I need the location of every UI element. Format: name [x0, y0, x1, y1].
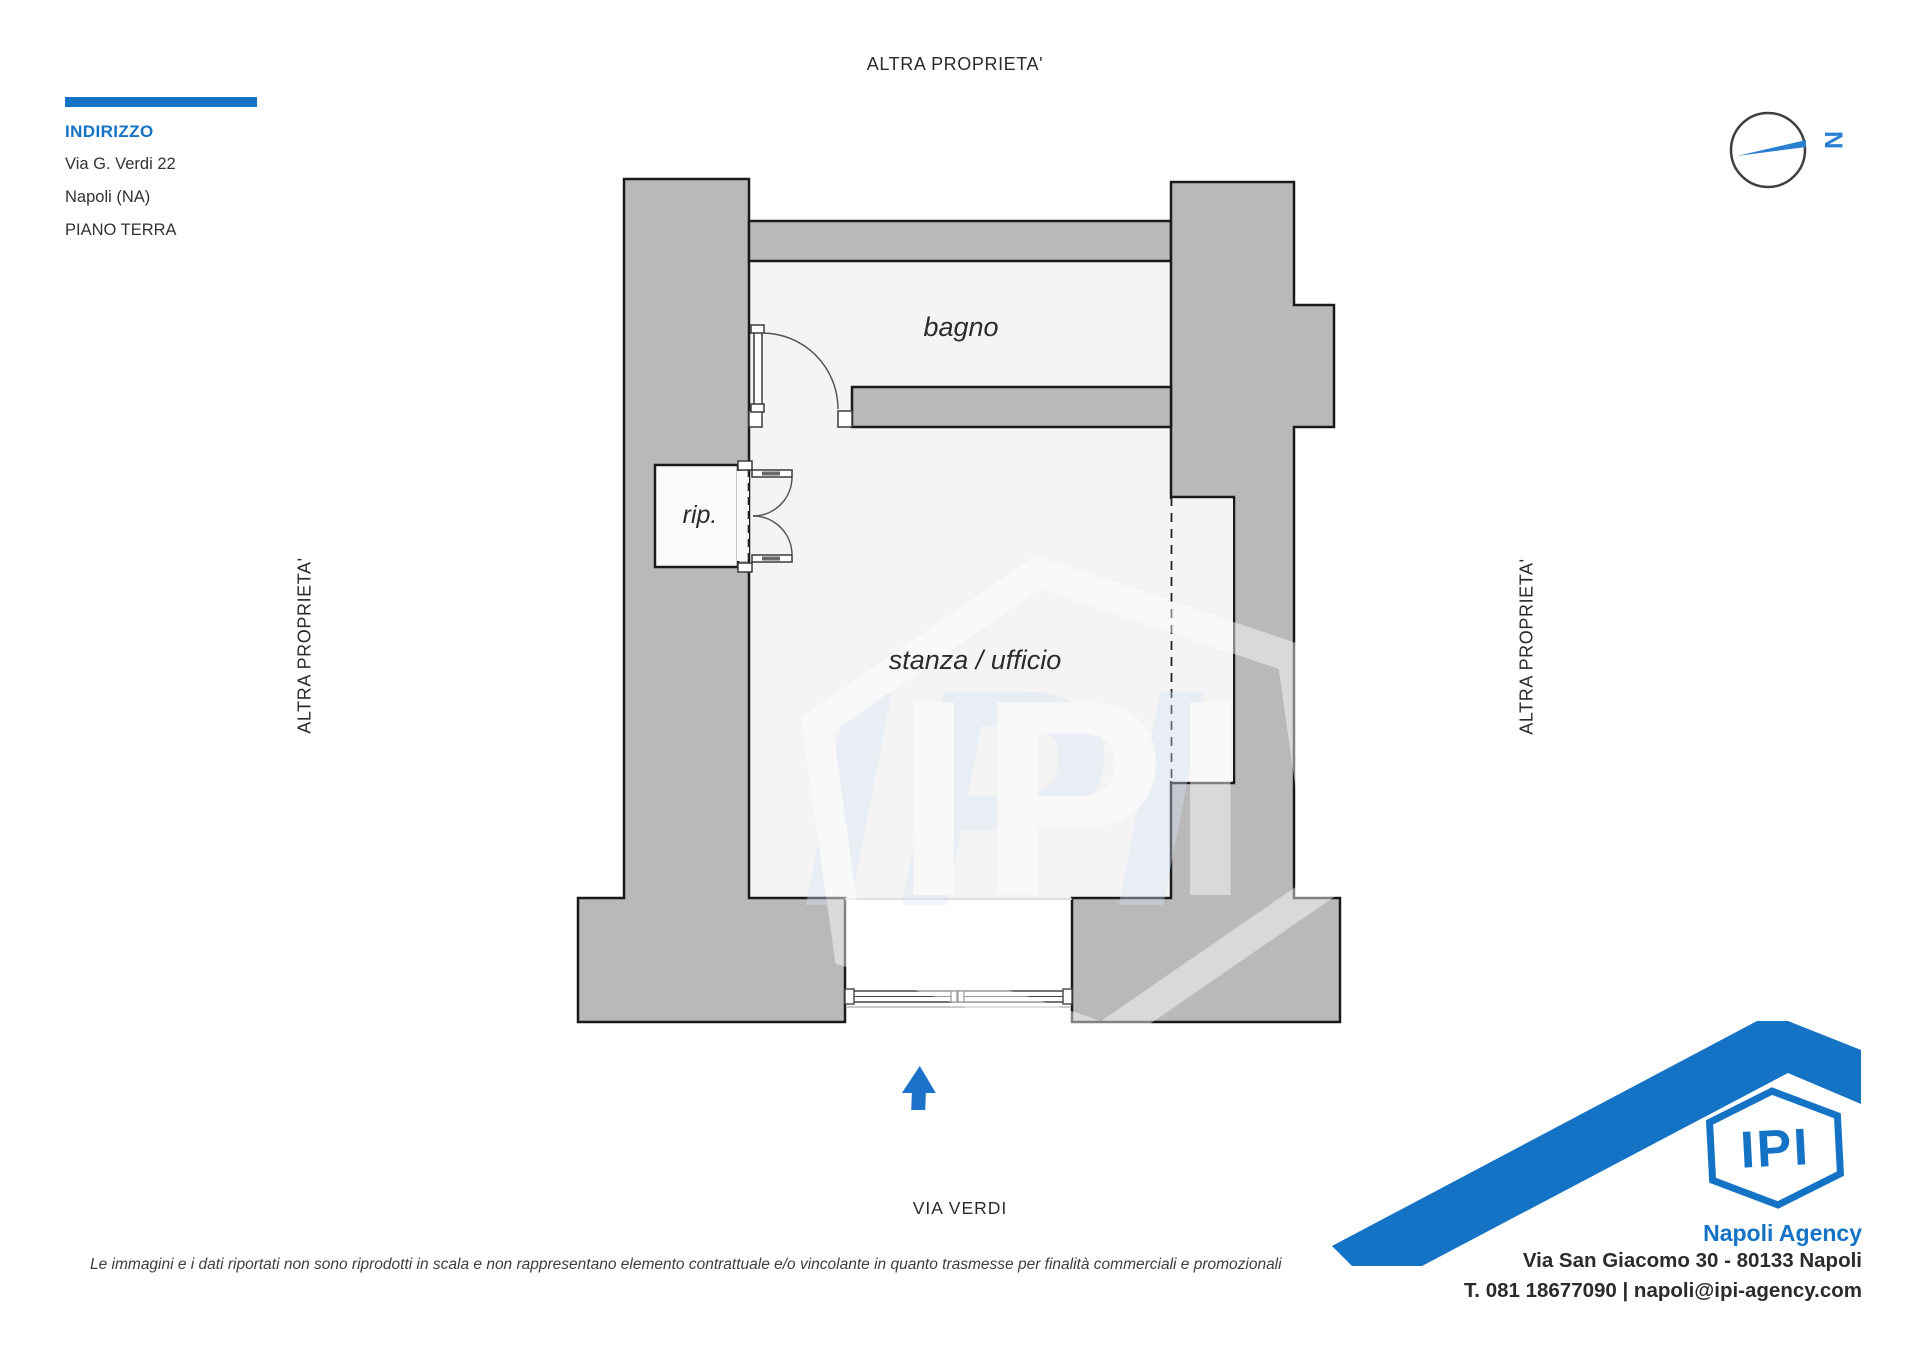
window-cap-left	[845, 989, 854, 1004]
room-label-stanza: stanza / ufficio	[825, 645, 1125, 676]
agency-contacts: T. 081 18677090 | napoli@ipi-agency.com	[1464, 1279, 1862, 1303]
header-accent-bar	[65, 97, 257, 107]
agency-address: Via San Giacomo 30 - 80133 Napoli	[1523, 1249, 1862, 1273]
floorplan-canvas: IPI IPI N IPI	[0, 0, 1920, 1358]
room-label-bagno: bagno	[861, 312, 1061, 343]
floorplan-page: IPI IPI N IPI INDIRIZZO Via G. Verdi 22 …	[0, 0, 1920, 1358]
compass: N	[1731, 113, 1847, 187]
address-floor: PIANO TERRA	[65, 221, 177, 240]
agency-name: Napoli Agency	[1703, 1220, 1862, 1247]
bagno-door-leaf	[754, 331, 762, 409]
rip-door-jamb-bottom	[738, 563, 752, 572]
compass-north-label: N	[1819, 131, 1847, 149]
rip-door-jamb-top	[738, 461, 752, 470]
entrance-arrow-icon	[901, 1066, 937, 1110]
address-city: Napoli (NA)	[65, 188, 150, 207]
address-heading: INDIRIZZO	[65, 122, 154, 142]
wall-bagno-south	[852, 387, 1171, 427]
boundary-label-right: ALTRA PROPRIETA'	[1517, 497, 1538, 797]
address-street: Via G. Verdi 22	[65, 155, 176, 174]
window-cap-right	[1063, 989, 1072, 1004]
boundary-label-left: ALTRA PROPRIETA'	[295, 496, 316, 796]
disclaimer-text: Le immagini e i dati riportati non sono …	[90, 1256, 1282, 1274]
watermark-ipi: IPI	[895, 643, 1255, 955]
room-label-rip: rip.	[650, 501, 750, 530]
wall-top	[749, 221, 1171, 261]
bagno-door-jamb-left	[749, 411, 762, 427]
agency-badge-text: IPI	[1739, 1118, 1812, 1180]
street-label: VIA VERDI	[860, 1198, 1060, 1219]
boundary-label-top: ALTRA PROPRIETA'	[830, 54, 1080, 75]
bagno-door-jamb-right	[838, 411, 852, 427]
